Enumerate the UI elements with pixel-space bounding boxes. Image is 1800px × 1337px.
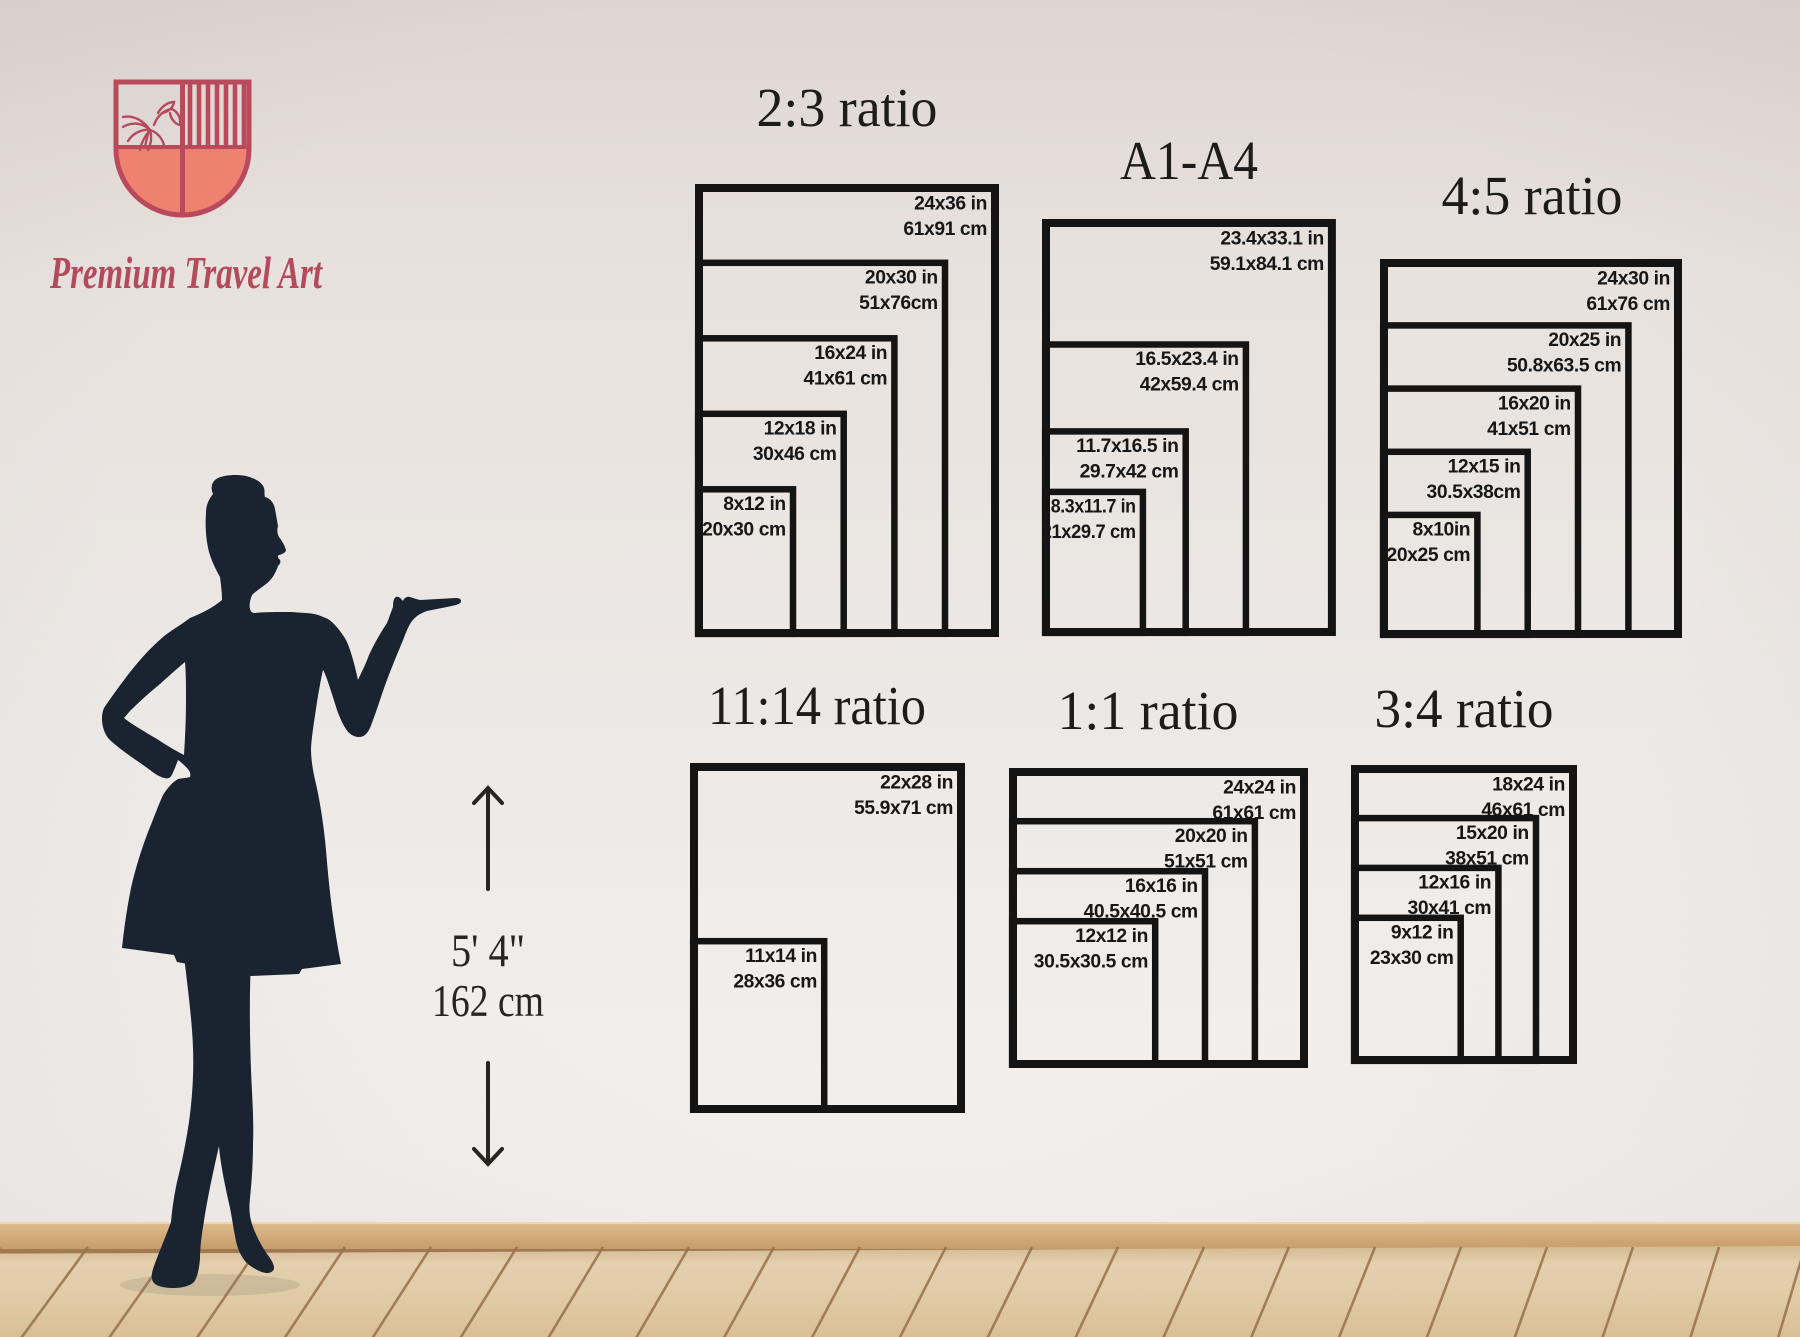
svg-text:5' 4": 5' 4" — [451, 925, 525, 977]
svg-text:Premium Travel Art: Premium Travel Art — [49, 247, 323, 298]
svg-text:1:1 ratio: 1:1 ratio — [1058, 680, 1239, 741]
svg-text:2:3 ratio: 2:3 ratio — [757, 77, 938, 138]
svg-text:162 cm: 162 cm — [432, 976, 544, 1026]
svg-text:A1-A4: A1-A4 — [1120, 130, 1258, 191]
svg-text:3:4 ratio: 3:4 ratio — [1375, 678, 1554, 739]
svg-text:4:5 ratio: 4:5 ratio — [1442, 165, 1623, 226]
svg-text:11:14 ratio: 11:14 ratio — [708, 675, 926, 736]
